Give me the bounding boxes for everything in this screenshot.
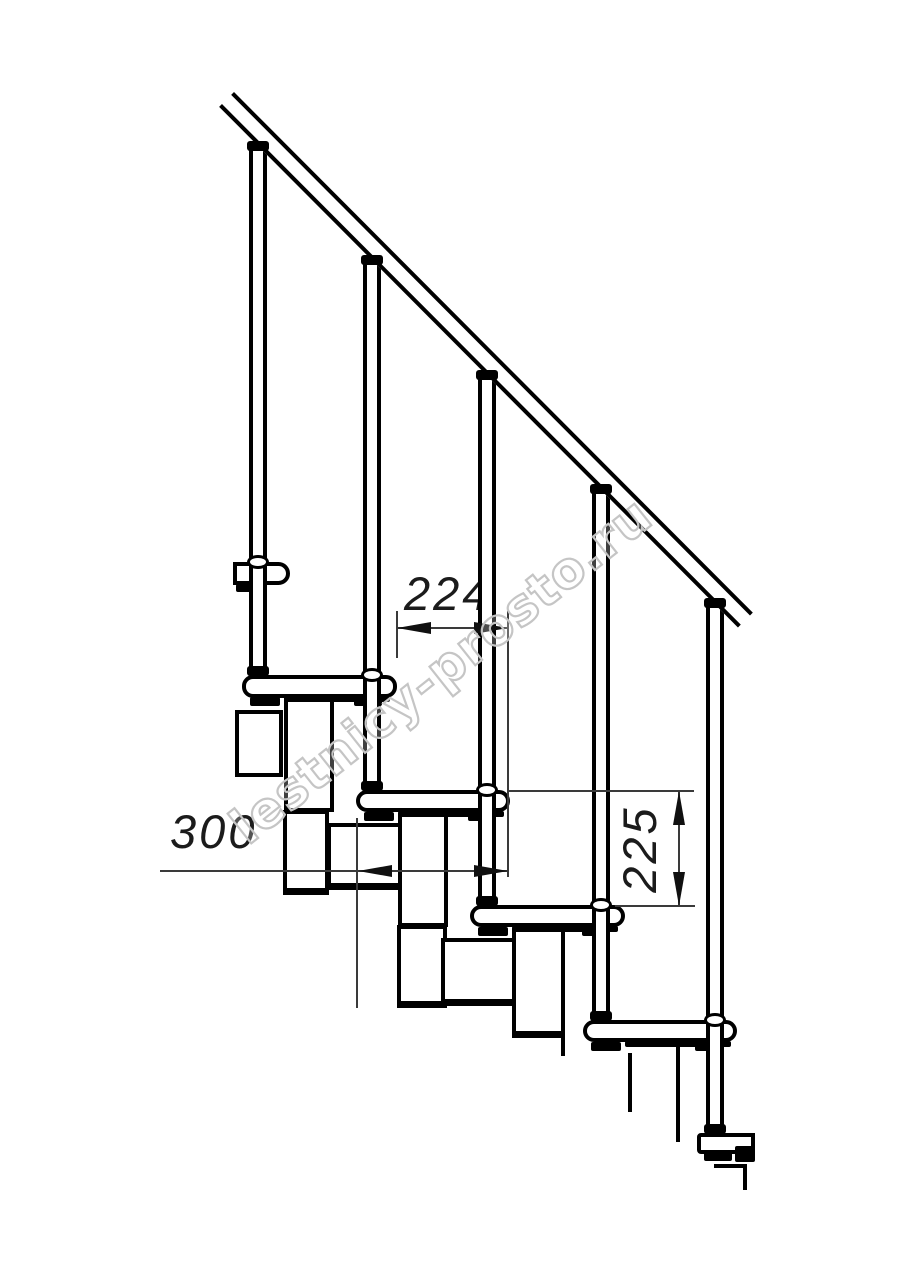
dim300-ext-left <box>356 818 358 1008</box>
baluster-2 <box>363 264 381 790</box>
rail-nub-2 <box>361 255 383 265</box>
landing-nub-2 <box>361 781 383 791</box>
module-neck-1 <box>284 698 334 812</box>
dim224-arrow-right <box>474 622 508 634</box>
module-body-2 <box>441 938 518 1006</box>
partial-line-neck4 <box>676 1045 680 1142</box>
baluster-4 <box>592 493 610 1020</box>
rail-nub-5 <box>704 598 726 608</box>
module-vert-2 <box>397 925 447 1008</box>
dim225-ext-top <box>508 790 694 792</box>
module-upper-box <box>235 710 283 777</box>
dim224-ext-right <box>507 611 509 877</box>
partial-line-step5v <box>743 1164 747 1190</box>
baluster-1 <box>249 150 267 675</box>
watermark-layer: lestnicy-prosto.ru <box>0 0 914 1280</box>
tread2-tab-left <box>364 812 394 821</box>
landing-nub-3 <box>476 896 498 906</box>
dim300-line <box>160 870 508 872</box>
collar-2 <box>361 668 383 682</box>
rail-nub-4 <box>590 484 612 494</box>
tread1-tab-left <box>250 697 280 706</box>
rail-nub-1 <box>247 141 269 151</box>
partial-line-body3 <box>628 1053 632 1112</box>
module-body-1 <box>327 823 403 890</box>
dim224-arrow-left <box>397 622 431 634</box>
collar-5 <box>704 1013 726 1027</box>
rail-nub-3 <box>476 370 498 380</box>
collar-3 <box>476 783 498 797</box>
tread4-tab-left <box>591 1042 621 1051</box>
module-neck-3 <box>512 928 565 1038</box>
collar-1 <box>247 555 269 569</box>
staircase-technical-drawing: 224 300 225 lestnicy-prosto.ru <box>0 0 914 1280</box>
dim300-arrow-left <box>358 865 392 877</box>
baluster-5 <box>706 607 724 1133</box>
dim225-arrow-up <box>673 791 685 825</box>
dimension-label-300: 300 <box>170 804 257 859</box>
dim300-arrow-right <box>474 865 508 877</box>
landing-nub-4 <box>590 1011 612 1021</box>
tread5-tab-left <box>704 1152 732 1161</box>
landing-nub-5 <box>704 1124 726 1134</box>
dimension-label-225: 225 <box>612 794 664 904</box>
landing-nub-1 <box>247 666 269 676</box>
dim224-ext-left <box>396 611 398 658</box>
tread5-block <box>735 1146 755 1162</box>
module-vert-1 <box>283 810 329 895</box>
tread3-tab-left <box>478 927 508 936</box>
partial-line-neck3 <box>561 1038 565 1056</box>
collar-4 <box>590 898 612 912</box>
dim225-arrow-down <box>673 872 685 906</box>
baluster-3 <box>478 379 496 905</box>
